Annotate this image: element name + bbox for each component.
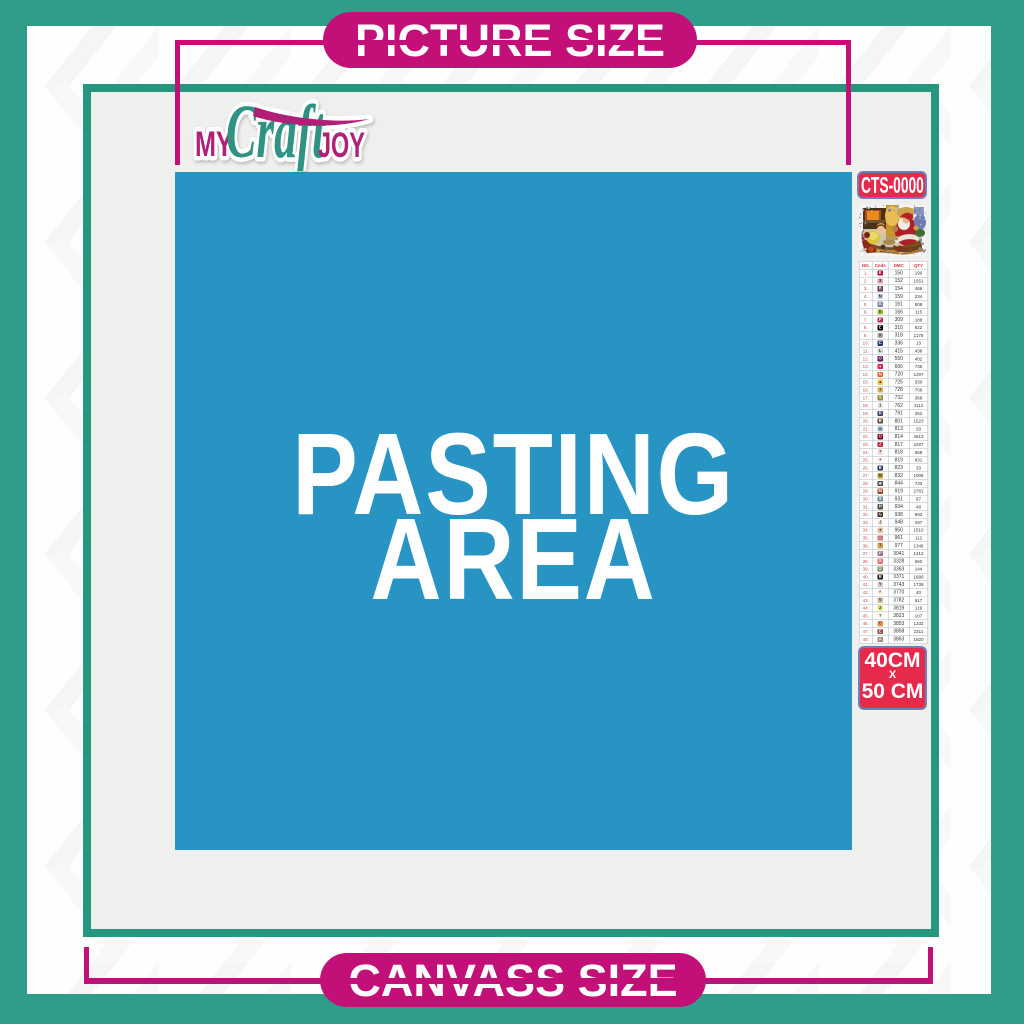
svg-text:Craft: Craft — [226, 93, 326, 171]
svg-text:JOY: JOY — [318, 126, 365, 165]
